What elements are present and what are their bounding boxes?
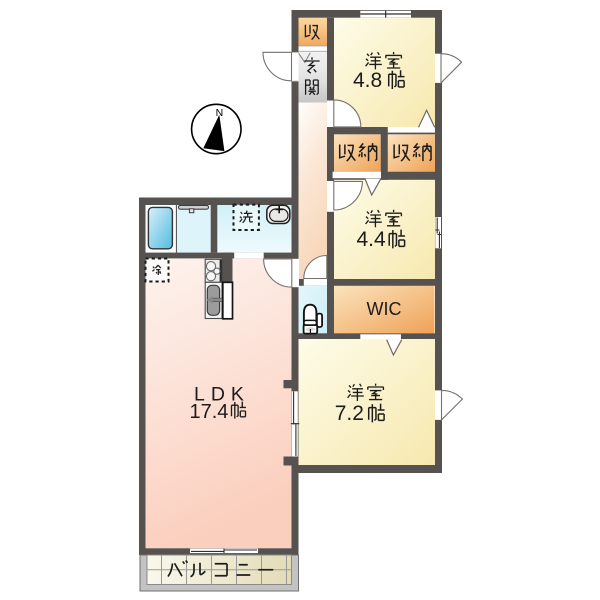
svg-text:4.8: 4.8 xyxy=(353,69,382,92)
svg-text:N: N xyxy=(216,107,224,119)
svg-text:WIC: WIC xyxy=(367,299,402,319)
svg-text:4.4: 4.4 xyxy=(357,228,387,251)
svg-text:7.2: 7.2 xyxy=(335,402,364,425)
svg-text:17.4: 17.4 xyxy=(190,401,229,423)
